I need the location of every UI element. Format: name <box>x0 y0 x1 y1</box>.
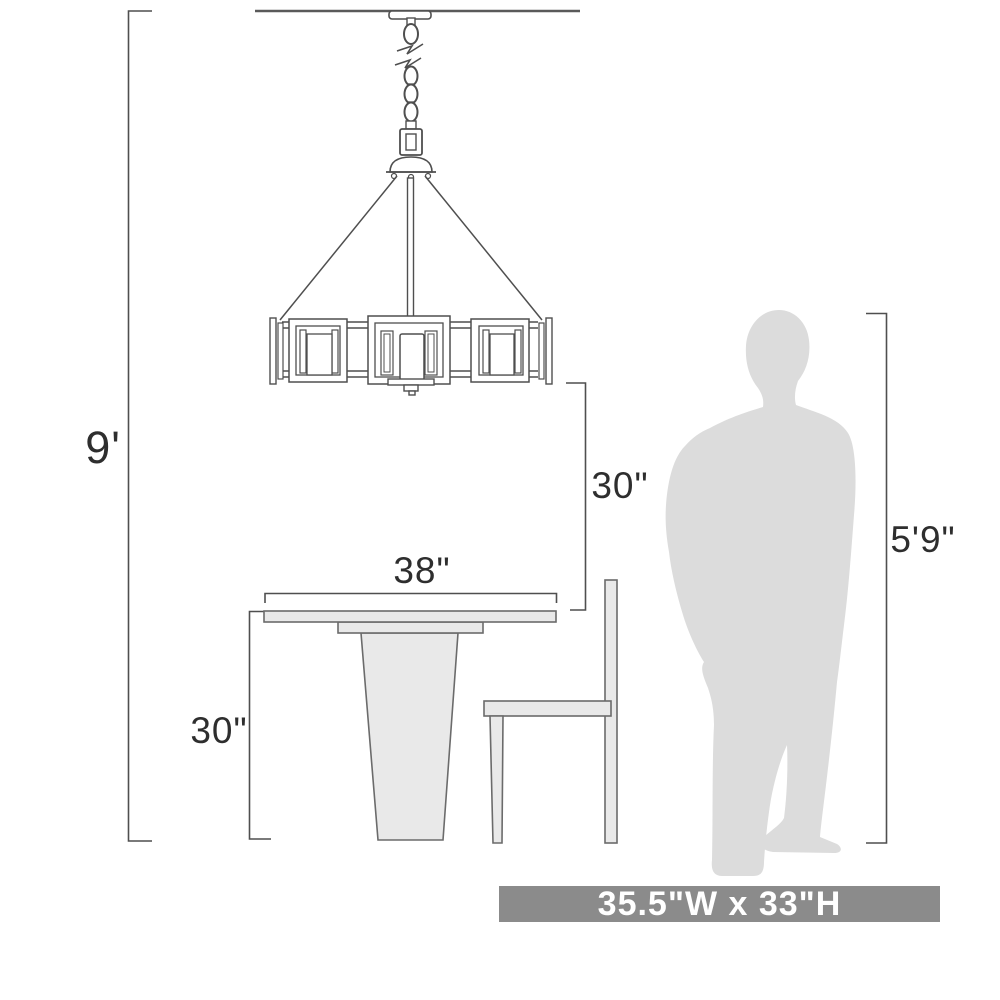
dimension-diagram: 9' 30" 38" 30" 5'9" 35.5"W x 33"H <box>0 0 1000 1000</box>
panel-frame-right <box>471 319 529 382</box>
label-ceiling-height: 9' <box>85 422 121 474</box>
dim-line-30in-clearance <box>566 383 586 610</box>
dim-line-30in-table-height <box>250 612 272 840</box>
shade-right <box>490 334 514 375</box>
center-rod <box>408 178 414 338</box>
candle-socket <box>400 334 424 380</box>
support-wire-right <box>425 176 542 320</box>
chain <box>386 11 436 180</box>
chair-seat <box>484 701 611 716</box>
dim-line-38in-width <box>265 594 557 604</box>
support-wire-left <box>280 176 397 320</box>
label-table-width: 38" <box>393 550 450 592</box>
label-fixture-to-table-clearance: 30" <box>591 465 648 507</box>
fixture-canopy <box>390 157 432 172</box>
diagram-canvas <box>0 0 1000 1000</box>
panel-frame-left <box>289 319 347 382</box>
drum-left-edge <box>270 318 276 384</box>
person-silhouette <box>666 310 856 876</box>
panel-frame-center <box>368 316 450 384</box>
label-table-height: 30" <box>190 710 247 752</box>
dim-line-9ft <box>129 11 153 841</box>
break-mark-upper <box>397 44 423 54</box>
dining-table <box>264 611 556 840</box>
shade-left <box>307 334 332 375</box>
chandelier <box>270 176 552 395</box>
table-pedestal <box>361 633 458 840</box>
table-top <box>264 611 556 622</box>
table-apron <box>338 622 483 633</box>
fixture-size-text: 35.5"W x 33"H <box>598 885 842 924</box>
chair-front-leg <box>490 716 503 843</box>
bottom-finial <box>388 379 434 395</box>
label-person-height: 5'9" <box>890 519 955 561</box>
fixture-size-banner: 35.5"W x 33"H <box>499 886 940 922</box>
drum-right-edge <box>546 318 552 384</box>
dim-line-5ft9-person <box>866 314 887 844</box>
